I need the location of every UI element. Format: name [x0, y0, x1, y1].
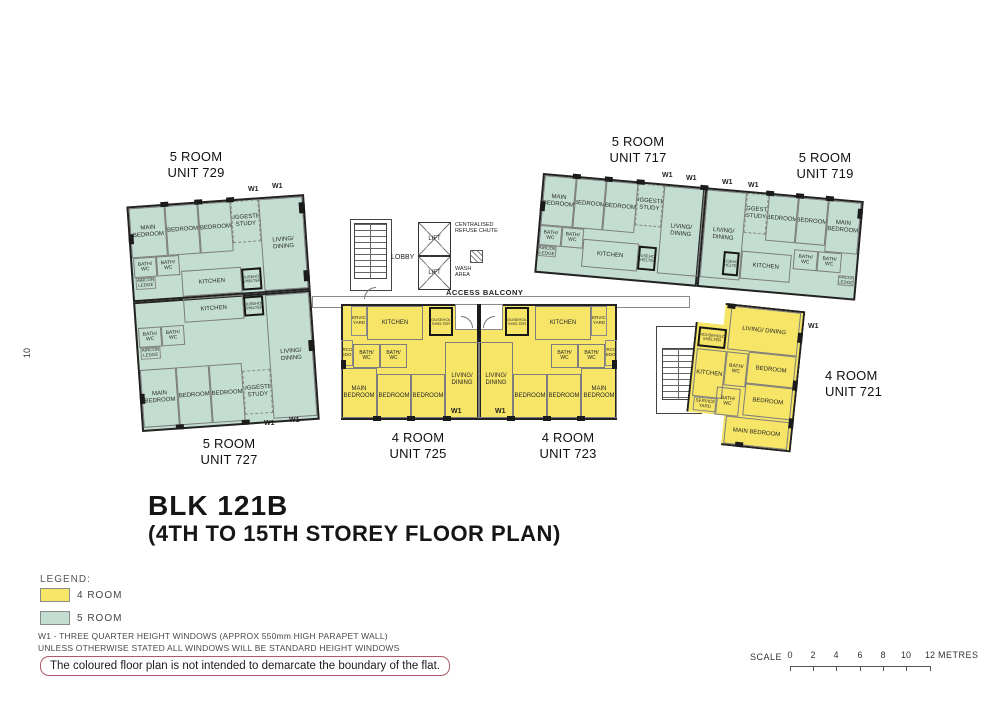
unit-721-wing: HOUSEHOLD SHELTER LIVING/ DINING KITCHEN…: [683, 300, 805, 453]
window-marker-w1: W1: [748, 182, 759, 189]
room-bedroom: BEDROOM: [746, 352, 797, 389]
room-suggested-study: SUGGESTED STUDY: [635, 183, 665, 227]
window-marker-w1: W1: [495, 408, 506, 415]
access-balcony-label: ACCESS BALCONY: [446, 288, 523, 297]
window-marker-w1: W1: [686, 175, 697, 182]
block-title: BLK 121B: [148, 490, 288, 522]
room-living-dining: LIVING/ DINING: [727, 306, 801, 357]
wall-pier: [140, 394, 146, 404]
unit-723-type: 4 ROOM: [522, 430, 614, 446]
scale-tick-4: 4: [826, 650, 846, 660]
floor-plan-page: 10 ACCESS BALCONY LOBBY LIFT LIFT CENTRA…: [0, 0, 1000, 708]
room-kitchen: KITCHEN: [535, 306, 591, 340]
wall-pier: [341, 360, 346, 369]
lift-1: LIFT: [418, 222, 451, 256]
unit-717-type: 5 ROOM: [590, 134, 686, 150]
room-bath-wc: BATH/ WC: [161, 325, 185, 347]
room-household-shelter: HOUSEHOLD SHELTER: [722, 251, 740, 276]
unit-729-number: UNIT 729: [150, 165, 242, 181]
room-household-shelter: HOUSEHOLD SHELTER: [637, 246, 657, 271]
page-number: 10: [22, 348, 32, 358]
scale-unit: METRES: [938, 650, 979, 660]
room-household-shelter: HOUSEHOLD SHELTER: [697, 326, 727, 349]
wall-pier: [507, 416, 515, 421]
window-marker-w1: W1: [662, 172, 673, 179]
room-bedroom: BEDROOM: [602, 181, 638, 234]
legend-label-4room: 4 ROOM: [77, 590, 122, 601]
scale-tick-12: 12: [920, 650, 940, 660]
room-kitchen: KITCHEN: [581, 239, 639, 272]
room-suggested-study: SUGGESTED STUDY: [242, 369, 273, 415]
wall-pier: [540, 201, 546, 211]
room-household-shelter: HOUSEHOLD SHELTER: [505, 307, 529, 336]
scale-tickmark: [813, 666, 814, 671]
note-w1: W1 - THREE QUARTER HEIGHT WINDOWS (APPRO…: [38, 631, 388, 641]
room-bath-wc: BATH/ WC: [561, 227, 585, 249]
unit-721-number: UNIT 721: [825, 384, 917, 400]
room-bath-wc: BATH/ WC: [539, 225, 563, 247]
room-household-shelter: HOUSEHOLD SHELTER: [241, 267, 262, 290]
scale-label: SCALE: [750, 652, 782, 662]
storey-title: (4TH TO 15TH STOREY FLOOR PLAN): [148, 521, 561, 547]
room-main-bedroom: MAIN BEDROOM: [140, 368, 180, 428]
room-bath-wc: BATH/ WC: [156, 255, 180, 277]
wall-pier: [226, 197, 234, 203]
room-bath-wc: BATH/ WC: [793, 249, 819, 271]
scale-tickmark: [906, 666, 907, 671]
room-living-dining: LIVING/ DINING: [479, 342, 513, 418]
scale-tickmark: [790, 666, 791, 671]
window-marker-w1: W1: [808, 323, 819, 330]
room-bedroom: BEDROOM: [377, 374, 411, 418]
room-main-bedroom: MAIN BEDROOM: [540, 175, 576, 228]
room-bedroom: BEDROOM: [742, 383, 793, 420]
unit-723-title: 4 ROOM UNIT 723: [522, 430, 614, 461]
unit-723-number: UNIT 723: [522, 446, 614, 462]
wall-pier: [577, 416, 585, 421]
scale-tickmark: [860, 666, 861, 671]
window-marker-w1: W1: [248, 186, 259, 193]
wall-pier: [826, 196, 834, 202]
refuse-chute-label: CENTRALISED REFUSE CHUTE: [455, 222, 499, 235]
legend-label-5room: 5 ROOM: [77, 613, 122, 624]
room-bedroom: BEDROOM: [176, 365, 213, 425]
room-bedroom: BEDROOM: [164, 204, 200, 256]
wall-pier: [308, 340, 315, 351]
unit-729-title: 5 ROOM UNIT 729: [150, 149, 242, 180]
room-bedroom: BEDROOM: [547, 374, 581, 418]
wall-pier: [443, 416, 451, 421]
scale-tick-6: 6: [850, 650, 870, 660]
room-aircon-ledge: AIRCON LEDGE: [837, 275, 854, 286]
wall-pier: [605, 176, 613, 182]
unit-725-type: 4 ROOM: [372, 430, 464, 446]
window-marker-w1: W1: [722, 179, 733, 186]
unit-719-type: 5 ROOM: [777, 150, 873, 166]
room-aircon-ledge: AIRCON LEDGE: [135, 277, 156, 290]
room-bedroom: BEDROOM: [197, 201, 233, 253]
unit-717-title: 5 ROOM UNIT 717: [590, 134, 686, 165]
wall-pier: [176, 424, 184, 430]
note-windows: UNLESS OTHERWISE STATED ALL WINDOWS WILL…: [38, 643, 399, 653]
room-bedroom: BEDROOM: [411, 374, 445, 418]
room-bath-wc: BATH/ WC: [380, 344, 407, 368]
wall-pier: [573, 174, 581, 180]
unit-719-number: UNIT 719: [777, 166, 873, 182]
room-bath-wc: BATH/ WC: [138, 326, 162, 348]
wall-pier: [700, 185, 708, 191]
room-bedroom: BEDROOM: [513, 374, 547, 418]
wall-pier: [796, 193, 804, 199]
wall-pier: [857, 209, 863, 219]
wall-pier: [299, 202, 306, 213]
room-main-bedroom: MAIN BEDROOM: [824, 200, 861, 255]
legend-swatch-5room: [40, 611, 70, 625]
unit-721-title: 4 ROOM UNIT 721: [825, 368, 917, 399]
room-living-dining: LIVING/ DINING: [265, 292, 318, 419]
wall-pier: [636, 179, 644, 185]
room-main-bedroom: MAIN BEDROOM: [341, 368, 377, 418]
unit-729-type: 5 ROOM: [150, 149, 242, 165]
room-kitchen: KITCHEN: [740, 251, 792, 283]
room-living-dining: LIVING/ DINING: [657, 186, 706, 277]
wall-pier: [735, 442, 743, 448]
window-marker-w1: W1: [272, 183, 283, 190]
scale-tick-8: 8: [873, 650, 893, 660]
room-kitchen: KITCHEN: [367, 306, 423, 340]
unit-717-number: UNIT 717: [590, 150, 686, 166]
legend-swatch-4room: [40, 588, 70, 602]
room-suggested-study: SUGGESTED STUDY: [230, 199, 261, 243]
window-marker-w1: W1: [264, 420, 275, 427]
unit-725-title: 4 ROOM UNIT 725: [372, 430, 464, 461]
room-service-yard: SERVICE YARD: [591, 306, 607, 336]
scale-tick-0: 0: [780, 650, 800, 660]
wall-pier: [303, 270, 310, 281]
room-bath-wc: BATH/ WC: [133, 257, 157, 279]
room-bedroom: BEDROOM: [209, 363, 246, 423]
staircase-rail: [370, 223, 371, 279]
wall-pier: [242, 419, 250, 425]
room-bath-wc: BATH/ WC: [551, 344, 578, 368]
room-household-shelter: HOUSEHOLD SHELTER: [429, 307, 453, 336]
wall-pier: [128, 234, 134, 244]
room-bedroom: BEDROOM: [765, 195, 799, 243]
window-marker-w1: W1: [289, 417, 300, 424]
disclaimer-note: The coloured floor plan is not intended …: [40, 656, 450, 676]
wall-pier: [797, 333, 803, 343]
room-kitchen: KITCHEN: [183, 295, 245, 323]
room-aircon-ledge: AIRCON LEDGE: [538, 245, 557, 258]
scale-tick-2: 2: [803, 650, 823, 660]
room-living-dining: LIVING/ DINING: [445, 342, 479, 418]
left-wing: MAIN BEDROOM BEDROOM BEDROOM SUGGESTED S…: [126, 190, 322, 434]
unit-727-number: UNIT 727: [183, 452, 275, 468]
unit-721-type: 4 ROOM: [825, 368, 917, 384]
scale-tickmark: [883, 666, 884, 671]
party-wall: [477, 304, 481, 338]
room-bath-wc: BATH/ WC: [816, 251, 842, 273]
window-marker-w1: W1: [451, 408, 462, 415]
unit-727-type: 5 ROOM: [183, 436, 275, 452]
room-bedroom: BEDROOM: [572, 178, 606, 230]
room-main-bedroom: MAIN BEDROOM: [581, 368, 617, 418]
room-bath-wc: BATH/ WC: [578, 344, 605, 368]
unit-725-number: UNIT 725: [372, 446, 464, 462]
room-bath-wc: BATH/ WC: [353, 344, 380, 368]
staircase-rail: [678, 348, 679, 400]
unit-727-title: 5 ROOM UNIT 727: [183, 436, 275, 467]
room-aircon-ledge: AIRCON LEDGE: [140, 347, 161, 360]
wall-pier: [612, 360, 617, 369]
wall-pier: [766, 191, 774, 197]
wall-pier: [407, 416, 415, 421]
room-bedroom: BEDROOM: [795, 197, 829, 245]
wash-area-label: WASH AREA: [455, 266, 481, 279]
lift-2: LIFT: [418, 256, 451, 290]
wall-pier: [543, 416, 551, 421]
wall-pier: [792, 380, 798, 390]
wall-pier: [373, 416, 381, 421]
wall-pier: [194, 199, 202, 205]
wall-pier: [160, 202, 168, 208]
refuse-chute-shaft: [470, 250, 483, 263]
legend-heading: LEGEND:: [40, 574, 91, 585]
wall-pier: [788, 418, 794, 428]
unit-719-title: 5 ROOM UNIT 719: [777, 150, 873, 181]
lobby-label: LOBBY: [391, 254, 421, 262]
wall-pier: [727, 303, 735, 309]
middle-block: SERVICE YARD KITCHEN HOUSEHOLD SHELTER A…: [341, 304, 617, 420]
room-kitchen: KITCHEN: [181, 267, 243, 297]
room-bath-wc: BATH/ WC: [714, 386, 741, 416]
room-service-yard: SERVICE YARD: [351, 306, 367, 336]
room-household-shelter: HOUSEHOLD SHELTER: [243, 295, 264, 316]
scale-tickmark: [930, 666, 931, 671]
room-main-bedroom: MAIN BEDROOM: [129, 206, 168, 258]
scale-tick-10: 10: [896, 650, 916, 660]
scale-tickmark: [836, 666, 837, 671]
